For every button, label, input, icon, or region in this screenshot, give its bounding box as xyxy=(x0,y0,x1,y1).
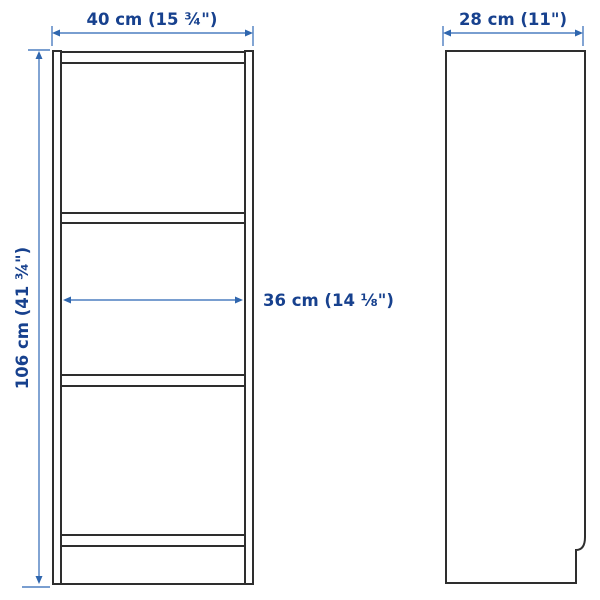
side-view xyxy=(446,51,585,583)
height-dimension: 106 cm (41 ¾") xyxy=(13,50,50,587)
height-dimension-label: 106 cm (41 ¾") xyxy=(13,247,32,389)
front-left-side-panel xyxy=(53,51,61,584)
width-arrow-right-icon xyxy=(245,30,253,37)
inner-width-dimension-label: 36 cm (14 ⅛") xyxy=(263,291,394,310)
inner-width-arrow-left-icon xyxy=(63,297,71,304)
width-arrow-left-icon xyxy=(52,30,60,37)
depth-dimension: 28 cm (11") xyxy=(443,10,583,46)
width-dimension: 40 cm (15 ¾") xyxy=(52,10,253,46)
inner-width-dimension: 36 cm (14 ⅛") xyxy=(63,291,394,310)
height-arrow-bottom-icon xyxy=(36,576,43,584)
front-right-side-panel xyxy=(245,51,253,584)
front-view xyxy=(52,51,254,584)
front-top-panel xyxy=(61,52,245,63)
depth-dimension-label: 28 cm (11") xyxy=(459,10,567,29)
dimension-diagram: 40 cm (15 ¾") 28 cm (11") 106 cm (41 ¾")… xyxy=(0,0,600,600)
dimension-diagram-canvas: 40 cm (15 ¾") 28 cm (11") 106 cm (41 ¾")… xyxy=(0,0,600,600)
width-dimension-label: 40 cm (15 ¾") xyxy=(87,10,218,29)
height-arrow-top-icon xyxy=(36,51,43,59)
front-shelf-2 xyxy=(61,375,245,386)
front-shelf-1 xyxy=(61,213,245,223)
depth-arrow-right-icon xyxy=(575,30,583,37)
inner-width-arrow-right-icon xyxy=(235,297,243,304)
depth-arrow-left-icon xyxy=(443,30,451,37)
side-panel-outline xyxy=(446,51,585,583)
front-bottom-shelf xyxy=(61,535,245,546)
